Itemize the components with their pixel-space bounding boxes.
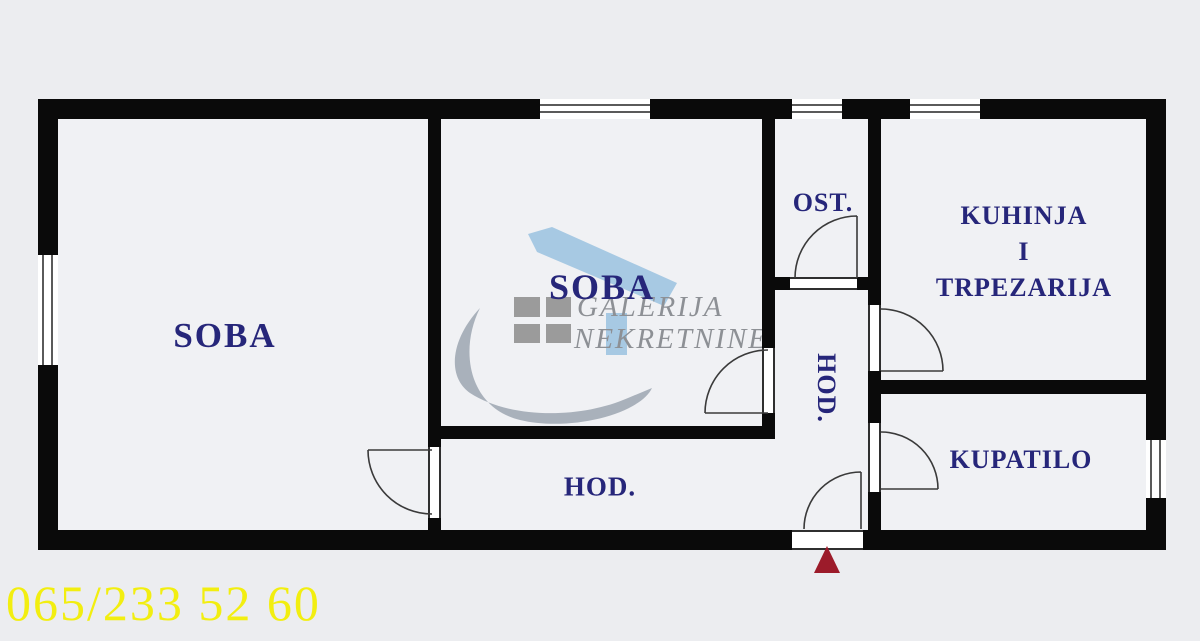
wall-segment (428, 119, 441, 447)
wall-segment (868, 371, 881, 423)
wall-segment (1146, 99, 1166, 440)
wall-segment (1146, 498, 1166, 550)
room-label-ost: OST. (793, 188, 854, 218)
wall-segment (868, 380, 1146, 394)
wall-segment (38, 99, 58, 255)
window-ost-top (792, 99, 842, 119)
door-opening-soba1 (428, 447, 441, 518)
contact-phone: 065/233 52 60 (6, 574, 321, 632)
wall-segment (842, 99, 910, 119)
wall-segment (650, 99, 792, 119)
wall-segment (868, 492, 881, 530)
wall-segment (38, 530, 792, 550)
wall-segment (428, 426, 775, 439)
room-label-kuhinja-line1: KUHINJA (936, 198, 1112, 234)
floor-plan: GALERIJA NEKRETNINE (0, 0, 1200, 641)
window-kuhinja-top (910, 99, 980, 119)
room-label-kupatilo: KUPATILO (950, 445, 1093, 475)
wall-segment (428, 518, 441, 530)
wall-segment (857, 277, 881, 290)
room-label-soba2: SOBA (549, 266, 655, 308)
room-label-kuhinja-line3: TRPEZARIJA (936, 270, 1112, 306)
room-label-hod-vertical: HOD. (811, 353, 841, 423)
wall-segment (863, 530, 1166, 550)
entrance-arrow-icon (814, 546, 840, 573)
wall-segment (38, 99, 540, 119)
window-soba2-top (540, 99, 650, 119)
room-label-kuhinja: KUHINJA I TRPEZARIJA (936, 198, 1112, 306)
wall-segment (980, 99, 1166, 119)
window-kupatilo-right (1146, 440, 1166, 498)
door-opening-soba2 (762, 348, 775, 413)
door-opening-kupatilo (868, 423, 881, 492)
wall-segment (762, 119, 775, 348)
window-soba1-left (38, 255, 58, 365)
wall-segment (38, 365, 58, 550)
door-opening-ost (790, 277, 857, 290)
watermark-text-line2: NEKRETNINE (574, 323, 768, 356)
room-label-kuhinja-line2: I (936, 234, 1112, 270)
room-label-soba1: SOBA (173, 316, 276, 356)
door-opening-kuhinja (868, 305, 881, 371)
room-label-hod-lower: HOD. (564, 472, 636, 503)
wall-segment (762, 277, 790, 290)
